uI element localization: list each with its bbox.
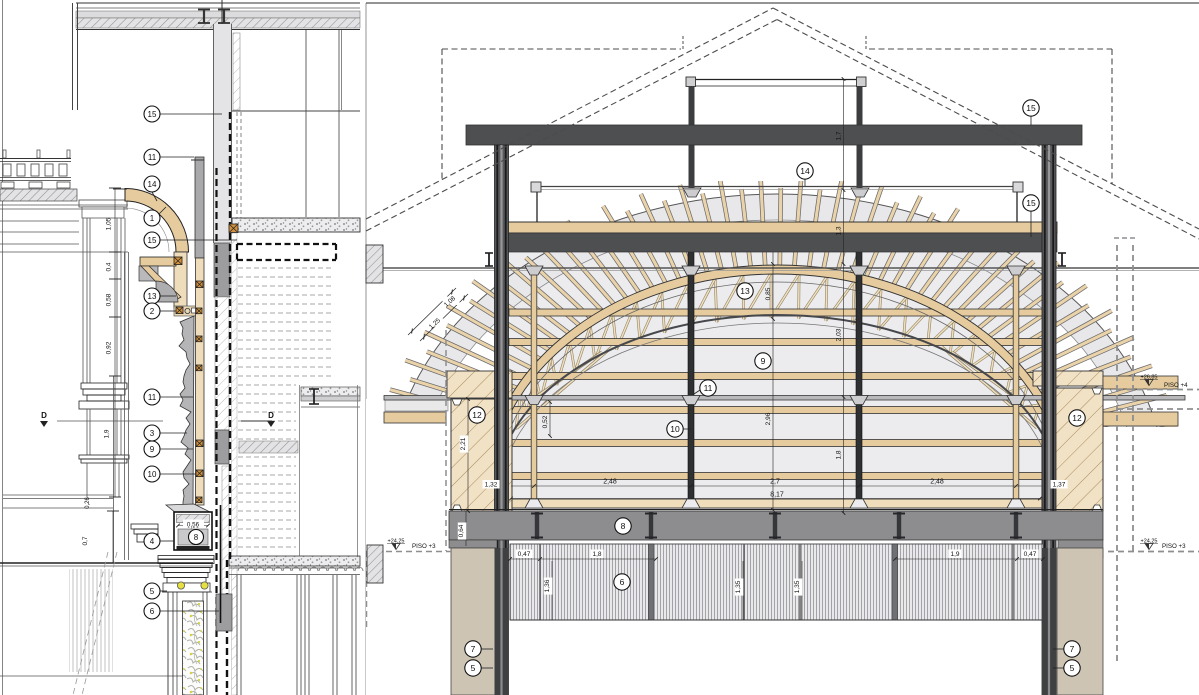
svg-text:14: 14	[800, 166, 810, 176]
svg-text:1: 1	[150, 214, 155, 223]
svg-text:0,56: 0,56	[187, 522, 200, 529]
svg-text:1,37: 1,37	[1053, 482, 1066, 489]
svg-text:0,58: 0,58	[106, 293, 113, 306]
svg-text:PISO +3: PISO +3	[1162, 543, 1186, 550]
svg-text:5: 5	[150, 587, 155, 596]
svg-text:0,92: 0,92	[106, 341, 113, 354]
svg-text:D: D	[268, 411, 274, 420]
svg-text:1,32: 1,32	[485, 482, 498, 489]
svg-text:2,48: 2,48	[930, 479, 944, 486]
svg-text:1,8: 1,8	[592, 551, 601, 558]
svg-text:0,85: 0,85	[765, 287, 772, 300]
svg-text:0,47: 0,47	[518, 551, 531, 558]
svg-text:0,26: 0,26	[85, 497, 91, 509]
svg-text:11: 11	[148, 393, 157, 402]
svg-text:9: 9	[761, 356, 766, 366]
svg-text:6: 6	[150, 607, 155, 616]
svg-text:13: 13	[740, 286, 750, 296]
svg-text:8,17: 8,17	[770, 492, 784, 499]
svg-text:2,03: 2,03	[836, 328, 843, 341]
svg-text:9: 9	[150, 445, 155, 454]
svg-text:6: 6	[620, 577, 625, 587]
svg-text:14: 14	[148, 180, 157, 189]
svg-text:0,47: 0,47	[1024, 551, 1037, 558]
svg-text:0,7: 0,7	[82, 536, 89, 545]
svg-text:12: 12	[472, 410, 482, 420]
svg-text:7: 7	[471, 644, 476, 654]
svg-text:PISO +3: PISO +3	[412, 543, 436, 550]
svg-text:13: 13	[148, 292, 157, 301]
svg-text:11: 11	[704, 383, 713, 393]
svg-text:D: D	[41, 411, 47, 420]
svg-text:8: 8	[621, 521, 626, 531]
svg-text:5: 5	[471, 663, 476, 673]
svg-text:2,7: 2,7	[770, 479, 780, 486]
svg-text:15: 15	[148, 236, 157, 245]
svg-text:1,9: 1,9	[104, 429, 111, 438]
svg-text:1,35: 1,35	[794, 580, 801, 593]
svg-text:0,52: 0,52	[542, 415, 549, 428]
svg-text:12: 12	[1072, 413, 1082, 423]
svg-text:7: 7	[1070, 644, 1075, 654]
svg-text:1,3: 1,3	[836, 226, 843, 235]
svg-text:10: 10	[148, 470, 157, 479]
svg-text:2,96: 2,96	[765, 412, 772, 425]
svg-text:2: 2	[150, 307, 155, 316]
svg-text:15: 15	[148, 110, 157, 119]
svg-text:10: 10	[670, 424, 680, 434]
svg-text:0,4: 0,4	[106, 262, 113, 271]
svg-text:PISO +4: PISO +4	[1164, 382, 1188, 389]
svg-text:3: 3	[150, 429, 155, 438]
svg-text:1,8: 1,8	[836, 450, 843, 459]
svg-text:5: 5	[1070, 663, 1075, 673]
svg-text:1,7: 1,7	[836, 131, 843, 140]
svg-text:2,21: 2,21	[460, 437, 467, 450]
svg-text:15: 15	[1026, 103, 1036, 113]
svg-text:0,64: 0,64	[458, 524, 465, 537]
svg-text:1,35: 1,35	[735, 580, 742, 593]
svg-text:15: 15	[1026, 198, 1036, 208]
svg-text:8: 8	[194, 533, 199, 542]
svg-text:11: 11	[148, 153, 157, 162]
svg-text:2,48: 2,48	[603, 479, 617, 486]
svg-text:1,05: 1,05	[106, 217, 113, 230]
svg-text:1,36: 1,36	[544, 579, 551, 592]
svg-text:4: 4	[150, 537, 155, 546]
svg-text:1,9: 1,9	[950, 551, 959, 558]
